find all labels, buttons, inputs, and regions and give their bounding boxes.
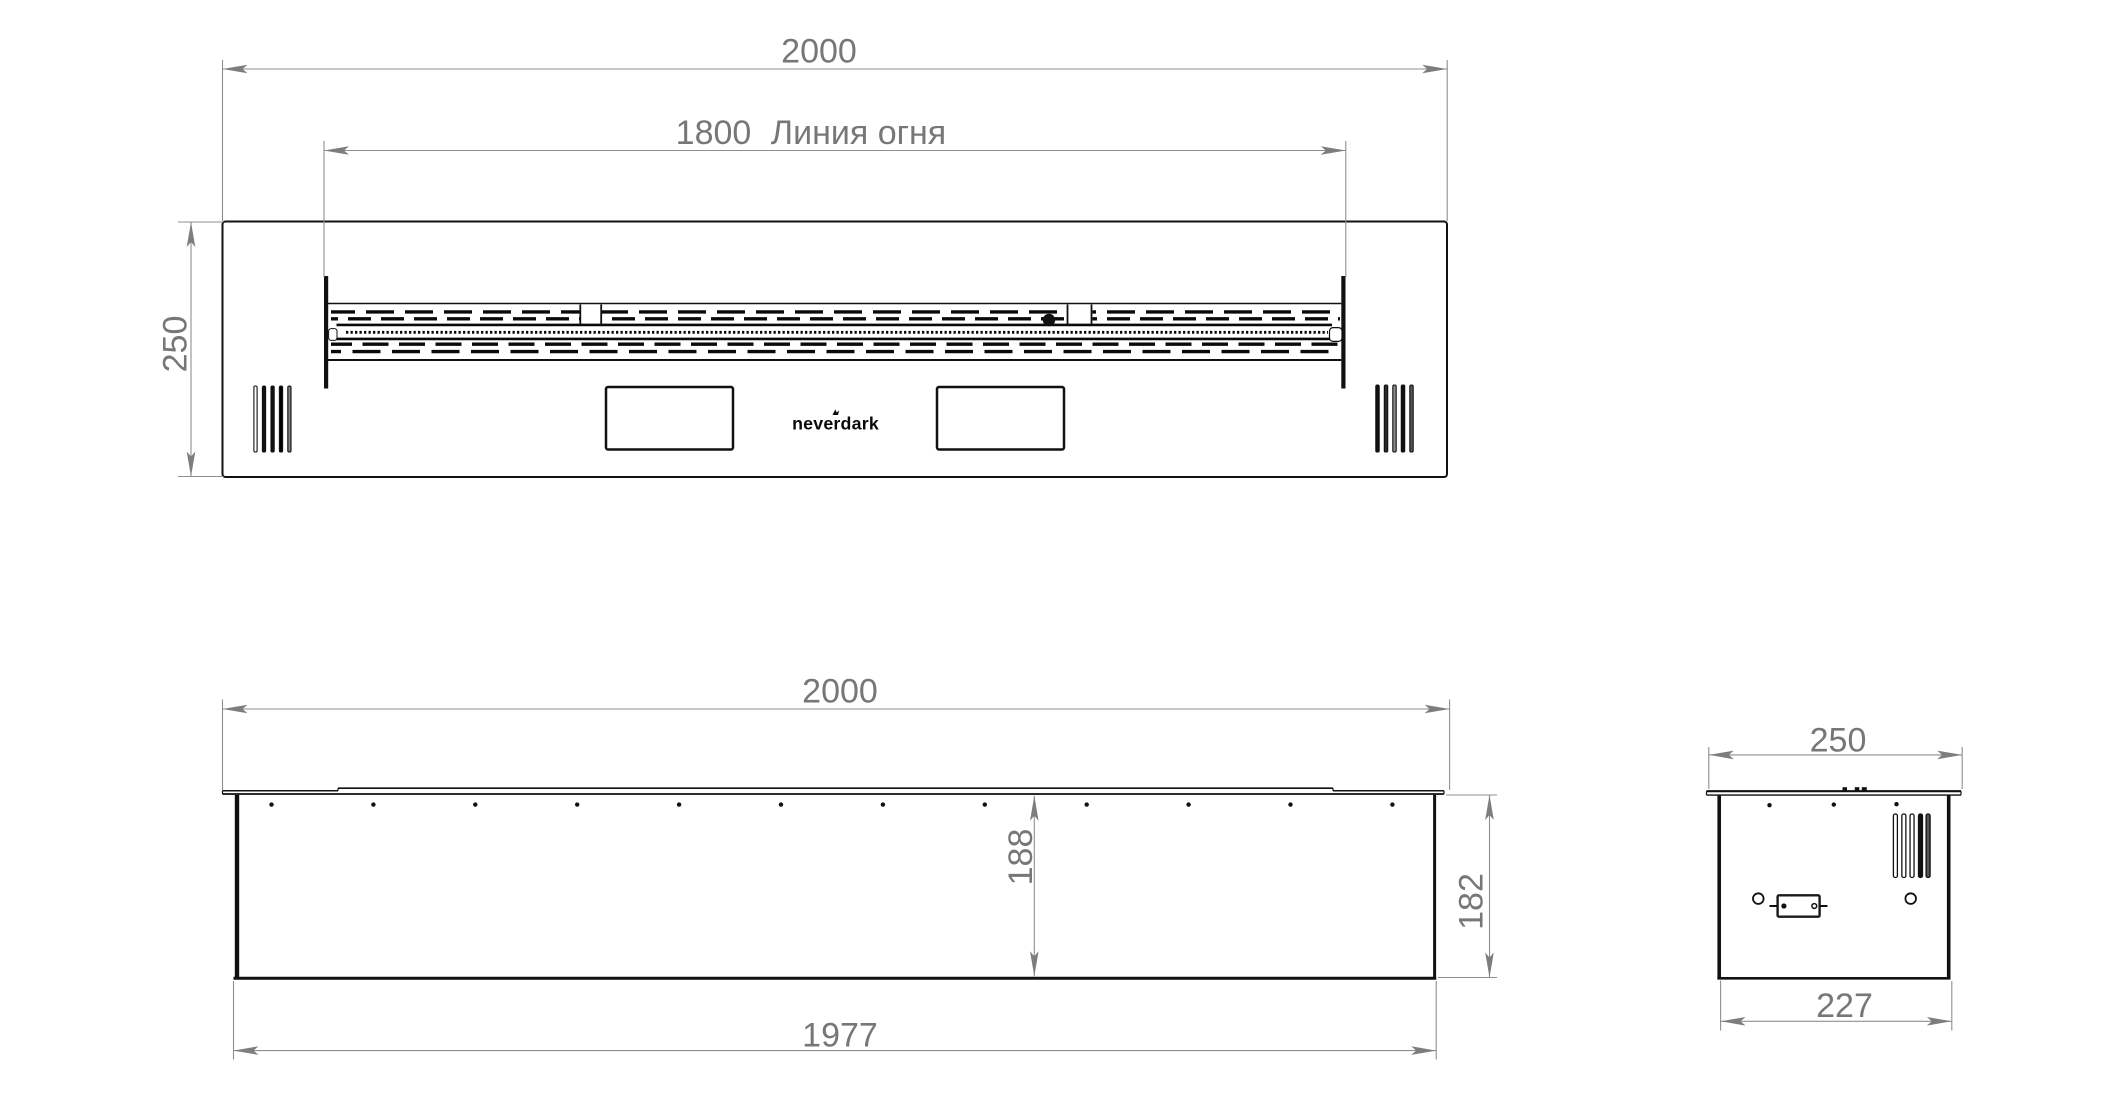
svg-text:1977: 1977 bbox=[802, 1017, 878, 1055]
svg-text:188: 188 bbox=[1002, 829, 1040, 886]
svg-text:neverdark: neverdark bbox=[792, 414, 879, 434]
svg-text:Линия огня: Линия огня bbox=[771, 114, 946, 152]
svg-text:2000: 2000 bbox=[781, 33, 857, 71]
svg-text:2000: 2000 bbox=[802, 673, 878, 711]
svg-text:227: 227 bbox=[1816, 987, 1873, 1025]
svg-text:182: 182 bbox=[1453, 873, 1491, 930]
svg-text:1800: 1800 bbox=[676, 114, 752, 152]
svg-text:250: 250 bbox=[157, 316, 195, 373]
svg-text:250: 250 bbox=[1810, 722, 1867, 760]
